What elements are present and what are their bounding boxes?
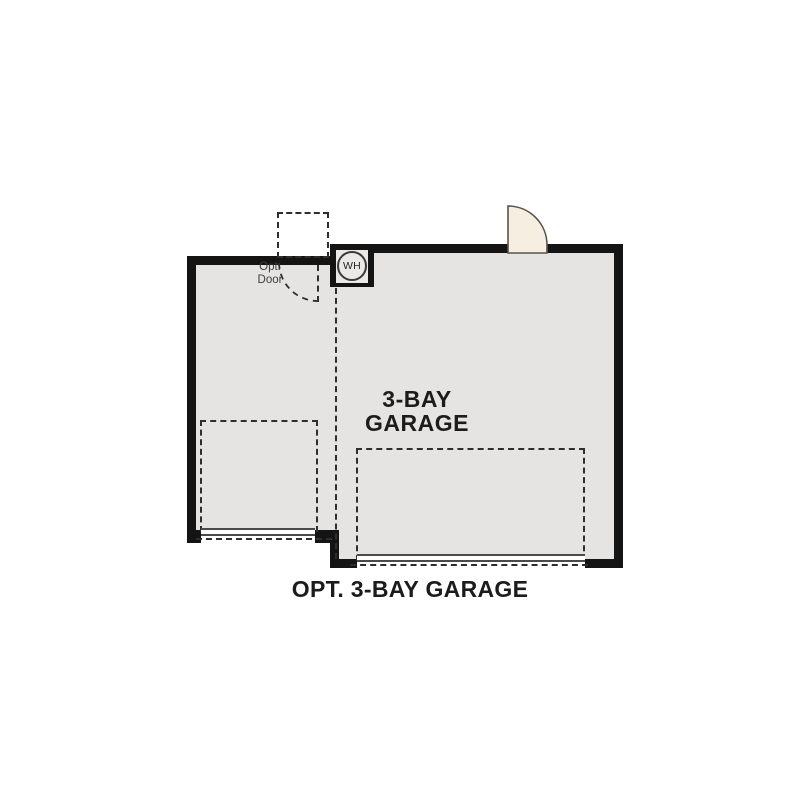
opt-door-label: Opt. Door [240, 261, 300, 287]
room-label-3-bay-garage: 3-BAY GARAGE [317, 387, 517, 435]
room-label-line1: 3-BAY [317, 387, 517, 411]
room-label-line2: GARAGE [317, 411, 517, 435]
opt-door-label-line2: Door [240, 274, 300, 287]
plan-caption: OPT. 3-BAY GARAGE [260, 576, 560, 603]
floor-plan: WH 3-BAY GARAGE OPT. 3-BAY GARAGE Opt. D… [0, 0, 810, 810]
entry-door-swing-icon [508, 206, 547, 253]
opt-door-label-line1: Opt. [240, 261, 300, 274]
